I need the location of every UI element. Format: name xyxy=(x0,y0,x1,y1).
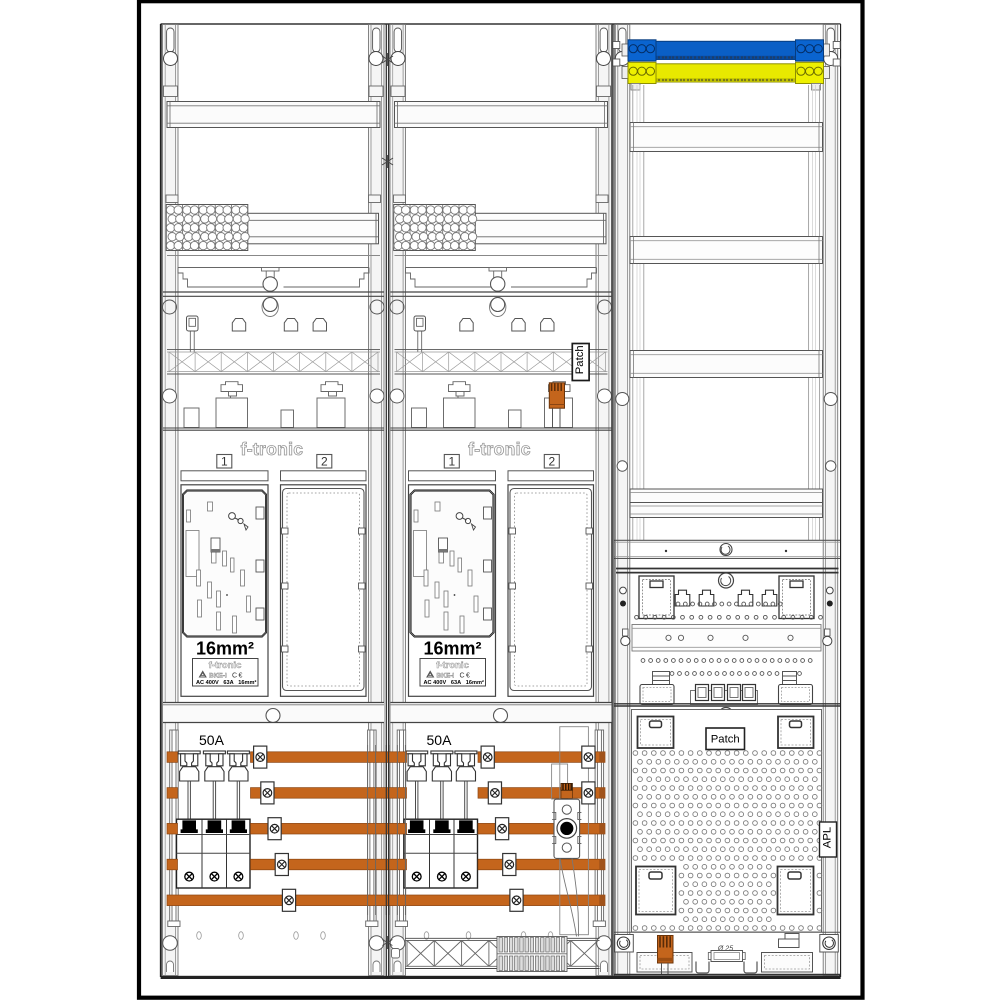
svg-text:APL: APL xyxy=(822,827,834,848)
svg-text:Patch: Patch xyxy=(711,734,740,746)
svg-text:Patch: Patch xyxy=(574,345,586,374)
